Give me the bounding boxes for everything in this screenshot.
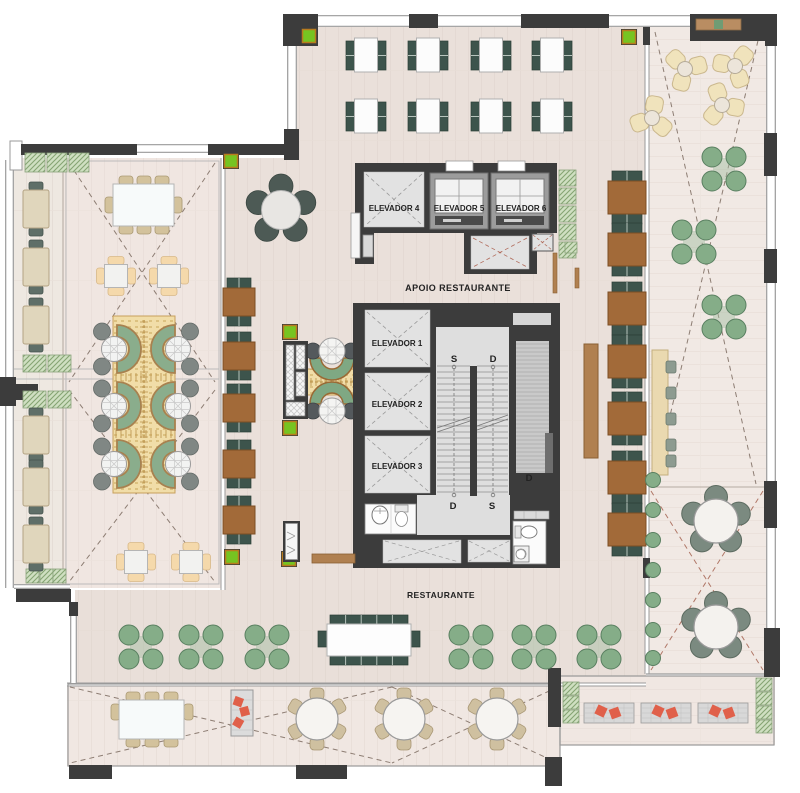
svg-text:ELEVADOR 3: ELEVADOR 3: [372, 462, 423, 471]
svg-text:D: D: [526, 473, 533, 484]
svg-text:D: D: [490, 354, 497, 365]
svg-text:S: S: [451, 354, 457, 365]
svg-text:ELEVADOR 4: ELEVADOR 4: [369, 204, 420, 213]
svg-text:ELEVADOR 6: ELEVADOR 6: [496, 204, 547, 213]
svg-text:ELEVADOR 5: ELEVADOR 5: [434, 204, 485, 213]
svg-text:S: S: [489, 501, 495, 512]
svg-text:ELEVADOR 1: ELEVADOR 1: [372, 339, 423, 348]
svg-text:D: D: [450, 501, 457, 512]
svg-text:ELEVADOR 2: ELEVADOR 2: [372, 400, 423, 409]
svg-text:RESTAURANTE: RESTAURANTE: [407, 590, 475, 600]
svg-text:APOIO RESTAURANTE: APOIO RESTAURANTE: [405, 283, 511, 293]
